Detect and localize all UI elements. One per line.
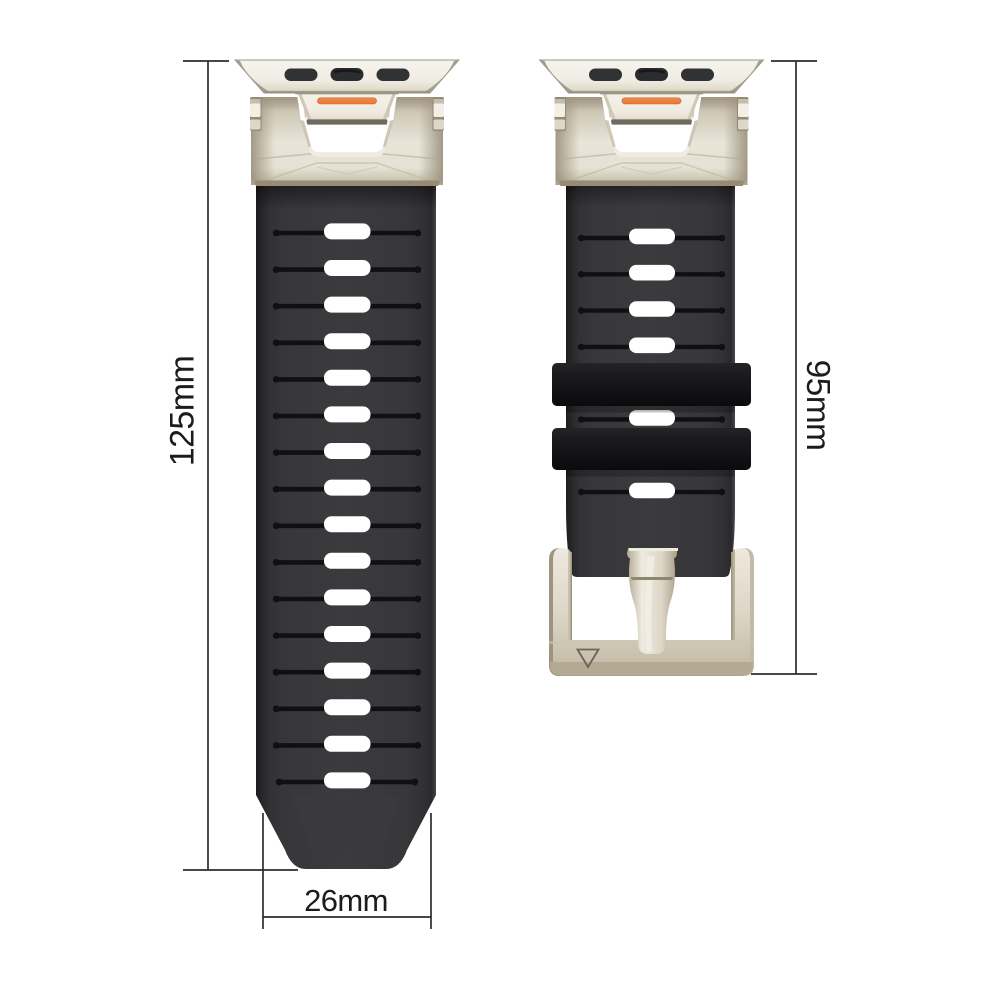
svg-text:26mm: 26mm	[304, 883, 388, 918]
svg-text:125mm: 125mm	[164, 356, 202, 466]
svg-text:95mm: 95mm	[799, 360, 836, 451]
